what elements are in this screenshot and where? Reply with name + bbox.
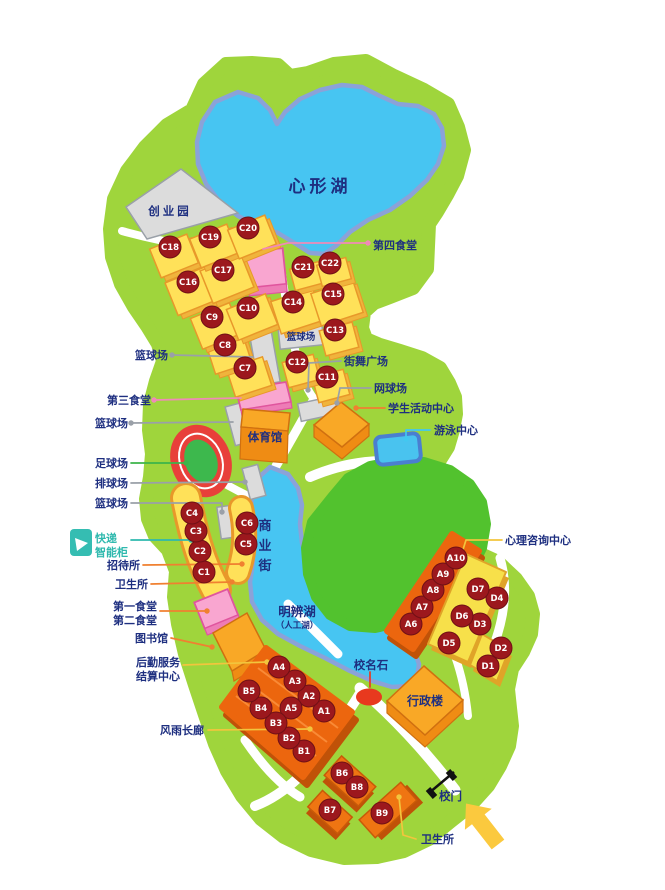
label-second-canteen: 第二食堂 — [113, 613, 157, 627]
marker-text: B8 — [351, 783, 363, 793]
label-clinic-2: 卫生所 — [421, 832, 454, 846]
marker-text: C3 — [190, 527, 202, 537]
building-marker-C12: C12 — [286, 351, 308, 373]
marker-text: D3 — [474, 620, 487, 630]
building-marker-C2: C2 — [189, 540, 211, 562]
marker-text: A1 — [318, 707, 331, 717]
marker-text: C10 — [239, 304, 257, 314]
marker-text: A10 — [447, 554, 465, 564]
marker-text: B1 — [298, 747, 310, 757]
label-commercial-street: 商业街 — [257, 518, 271, 574]
label-third-canteen: 第三食堂 — [107, 393, 151, 407]
marker-text: A2 — [303, 692, 316, 702]
marker-text: C14 — [284, 298, 302, 308]
marker-text: B3 — [270, 719, 282, 729]
building-marker-C9: C9 — [201, 306, 223, 328]
building-marker-C17: C17 — [212, 259, 234, 281]
building-marker-C22: C22 — [319, 252, 341, 274]
building-marker-C7: C7 — [234, 357, 256, 379]
building-marker-D7: D7 — [467, 578, 489, 600]
marker-text: C19 — [201, 233, 219, 243]
marker-text: A4 — [273, 663, 286, 673]
marker-text: B4 — [255, 704, 267, 714]
building-marker-C20: C20 — [237, 217, 259, 239]
building-marker-D1: D1 — [477, 655, 499, 677]
label-basketball-3: 篮球场 — [94, 496, 128, 510]
building-marker-C10: C10 — [237, 297, 259, 319]
marker-text: C7 — [239, 364, 251, 374]
label-fourth-canteen: 第四食堂 — [373, 238, 417, 252]
label-gymnasium: 体育馆 — [248, 430, 283, 444]
marker-text: C9 — [206, 313, 218, 323]
label-admin-building: 行政楼 — [406, 693, 443, 708]
marker-text: A3 — [289, 677, 302, 687]
label-basketball-2: 篮球场 — [94, 416, 128, 430]
label-rain-corridor: 风雨长廊 — [160, 723, 204, 737]
campus-map-image: C1C2C3C4C5C6C7C8C9C10C11C12C13C14C15C16C… — [0, 0, 665, 890]
building-marker-D2: D2 — [490, 637, 512, 659]
marker-text: C8 — [219, 341, 231, 351]
label-artificial-lake: （人工湖） — [276, 620, 319, 631]
marker-text: C15 — [324, 290, 342, 300]
building-marker-D5: D5 — [438, 632, 460, 654]
building-marker-A10: A10 — [445, 547, 467, 569]
swimming-pool — [375, 433, 422, 465]
marker-text: C18 — [161, 243, 179, 253]
label-logistics-2: 结算中心 — [135, 669, 180, 683]
building-marker-C16: C16 — [177, 271, 199, 293]
marker-text: A6 — [405, 620, 418, 630]
marker-text: B6 — [336, 769, 348, 779]
label-volleyball-court: 排球场 — [95, 476, 128, 490]
label-counseling-center: 心理咨询中心 — [505, 533, 571, 547]
marker-text: A5 — [285, 704, 298, 714]
label-basketball-court-label: 篮球场 — [286, 331, 316, 343]
label-heart-lake: 心形湖 — [289, 176, 352, 197]
marker-text: C17 — [214, 266, 232, 276]
building-marker-D6: D6 — [451, 605, 473, 627]
building-marker-C8: C8 — [214, 334, 236, 356]
building-marker-C1: C1 — [193, 561, 215, 583]
marker-text: C4 — [186, 509, 198, 519]
marker-text: D4 — [491, 594, 504, 604]
building-marker-B5: B5 — [238, 680, 260, 702]
marker-text: C1 — [198, 568, 210, 578]
building-marker-B8: B8 — [346, 776, 368, 798]
label-clinic-1: 卫生所 — [115, 577, 148, 591]
building-marker-C6: C6 — [236, 512, 258, 534]
label-street-dance-plaza: 街舞广场 — [343, 354, 388, 368]
building-marker-C14: C14 — [282, 291, 304, 313]
label-library: 图书馆 — [135, 631, 168, 645]
campus-map-page: C1C2C3C4C5C6C7C8C9C10C11C12C13C14C15C16C… — [0, 0, 665, 890]
marker-text: C11 — [318, 373, 336, 383]
label-guesthouse: 招待所 — [107, 558, 140, 572]
marker-text: C12 — [288, 358, 306, 368]
marker-text: B9 — [376, 809, 388, 819]
marker-text: C21 — [294, 263, 312, 273]
marker-text: C5 — [240, 540, 252, 550]
building-marker-A4: A4 — [268, 656, 290, 678]
marker-text: D5 — [443, 639, 456, 649]
marker-text: C22 — [321, 259, 339, 269]
marker-text: D1 — [482, 662, 495, 672]
marker-text: C16 — [179, 278, 197, 288]
marker-text: D6 — [456, 612, 469, 622]
building-marker-C21: C21 — [292, 256, 314, 278]
label-name-stone: 校名石 — [354, 658, 389, 672]
marker-text: A9 — [437, 570, 450, 580]
label-first-canteen: 第一食堂 — [113, 599, 157, 613]
label-logistics-1: 后勤服务 — [136, 655, 181, 669]
label-tennis-court: 网球场 — [374, 381, 407, 395]
marker-text: C2 — [194, 547, 206, 557]
marker-text: C20 — [239, 224, 257, 234]
label-mingbian-lake: 明辨湖 — [278, 604, 316, 619]
marker-text: B2 — [283, 734, 295, 744]
express-locker-icon — [70, 529, 92, 556]
building-marker-C5: C5 — [235, 533, 257, 555]
building-marker-C13: C13 — [324, 319, 346, 341]
marker-text: D2 — [495, 644, 508, 654]
marker-text: B7 — [324, 806, 336, 816]
building-marker-C19: C19 — [199, 226, 221, 248]
label-student-activity-center: 学生活动中心 — [388, 401, 454, 415]
marker-text: B5 — [243, 687, 255, 697]
building-marker-C18: C18 — [159, 236, 181, 258]
label-express-locker-2: 智能柜 — [95, 545, 128, 559]
building-marker-C11: C11 — [316, 366, 338, 388]
name-stone-shape — [356, 689, 382, 706]
marker-text: A8 — [427, 586, 440, 596]
marker-text: C13 — [326, 326, 344, 336]
label-express-locker-1: 快递 — [94, 531, 117, 545]
marker-text: C6 — [241, 519, 253, 529]
marker-text: D7 — [472, 585, 485, 595]
building-marker-B9: B9 — [371, 802, 393, 824]
label-startup-park: 创业园 — [147, 204, 192, 218]
building-marker-C15: C15 — [322, 283, 344, 305]
label-basketball-top: 篮球场 — [134, 348, 168, 362]
marker-text: A7 — [416, 603, 429, 613]
building-marker-C4: C4 — [181, 502, 203, 524]
label-school-gate: 校门 — [439, 789, 462, 803]
building-marker-B7: B7 — [319, 799, 341, 821]
label-swimming-center: 游泳中心 — [434, 423, 478, 437]
label-football-field: 足球场 — [95, 456, 128, 470]
